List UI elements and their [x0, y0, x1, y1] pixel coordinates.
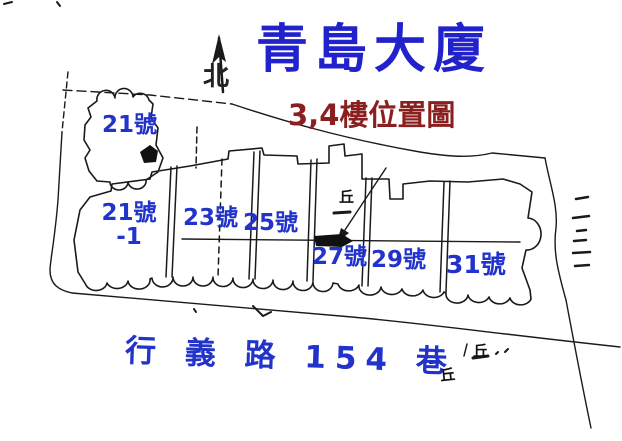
site-plan-page: 青島大廈 3,4樓位置圖 北 21號 21號 -1 23號 25號 27號 29… [0, 0, 622, 441]
page-title: 青島大廈 [256, 22, 492, 79]
building-label-23: 23號 [183, 206, 238, 230]
location-dot-21 [140, 145, 158, 163]
north-label: 北 [203, 56, 229, 93]
building-label-21-1-sub: -1 [96, 225, 162, 249]
building-label-21-1: 21號 -1 [96, 201, 162, 249]
building-label-27: 27號 [312, 245, 367, 269]
building-label-21: 21號 [102, 113, 157, 137]
boundary-left [50, 132, 72, 293]
survey-marker-icon: 丘 [439, 363, 456, 385]
right-dash-marks [573, 197, 590, 266]
page-subtitle: 3,4樓位置圖 [288, 92, 455, 134]
survey-marker-icon: 丘 [339, 186, 354, 207]
corner-marks [4, 2, 60, 6]
building-label-25: 25號 [243, 211, 298, 235]
building-label-31: 31號 [446, 252, 506, 278]
building-label-21-1-main: 21號 [96, 201, 162, 225]
building-label-29: 29號 [371, 248, 426, 272]
survey-marker-icon: 丘 [473, 340, 488, 361]
